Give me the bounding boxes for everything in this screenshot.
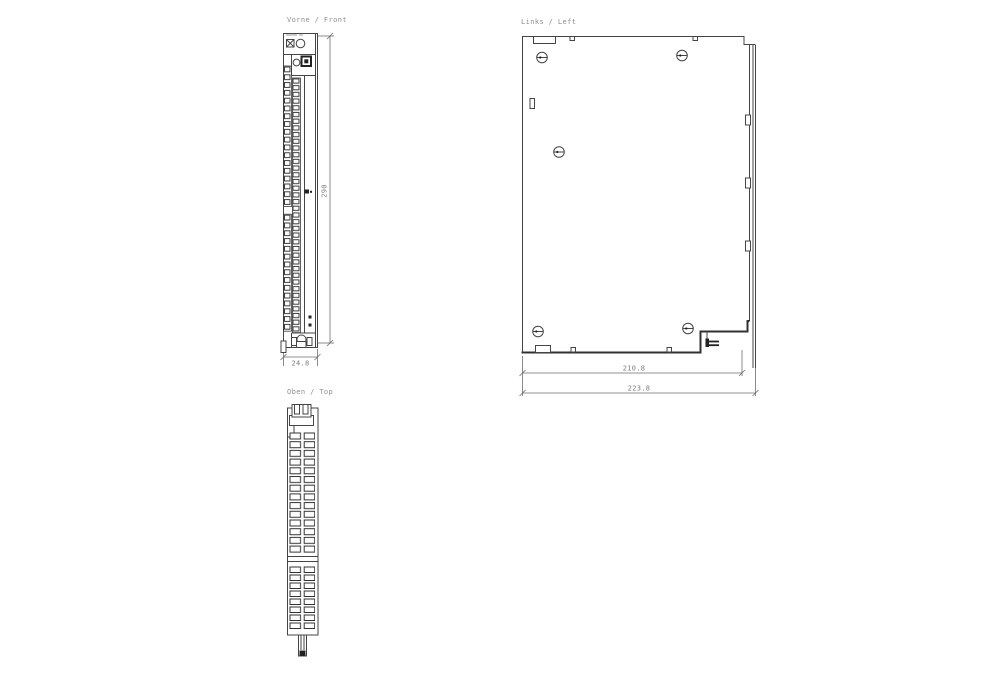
front-view: 290 24.8 [270,28,345,370]
terminal-strip-lower [284,214,292,331]
left-outer-depth-dim-text: 223.8 [628,385,651,393]
screw-icon-top-left [537,52,548,63]
screw-icon-bottom-right [683,323,694,334]
front-height-dimension: 290 [318,33,334,346]
screw-hole-icon [293,59,300,66]
terminal-grid-lower [290,566,316,630]
screw-icon-top-right [677,50,688,61]
bottom-bracket [292,333,316,348]
left-inner-depth-dim-text: 210.8 [623,365,646,373]
top-tab-1 [570,37,575,41]
contact-strip [293,78,301,333]
left-view: 210.8 223.8 [515,25,780,405]
bottom-stem [299,635,307,656]
top-view [275,395,350,670]
bottom-tab-1 [571,348,576,353]
top-slot [534,37,556,44]
side-window [530,99,535,109]
mode-switch-icon [302,57,312,67]
terminal-strip-upper [284,66,292,206]
screw-icon-middle [554,147,565,158]
drawing-canvas: Vorne / Front [0,0,1000,673]
keying-marks [305,190,313,327]
screw-icon-bottom-left [533,326,544,337]
backplane-connector-icon [290,405,314,426]
top-tab-2 [693,37,698,41]
front-width-dim-text: 24.8 [291,360,309,368]
divider-band [288,557,319,562]
bottom-left-spur [281,341,286,353]
front-height-dim-text: 290 [321,184,329,198]
mounting-rail [750,45,756,369]
round-opening-icon [296,39,305,48]
bottom-tab-2 [667,348,672,353]
left-body-outline [523,37,756,353]
terminal-grid-upper [290,432,316,554]
front-view-label: Vorne / Front [287,16,347,24]
left-bottom-profile [522,321,750,353]
bottom-slot [536,346,551,353]
connector-icon [706,332,720,348]
x-square-icon [287,40,295,48]
